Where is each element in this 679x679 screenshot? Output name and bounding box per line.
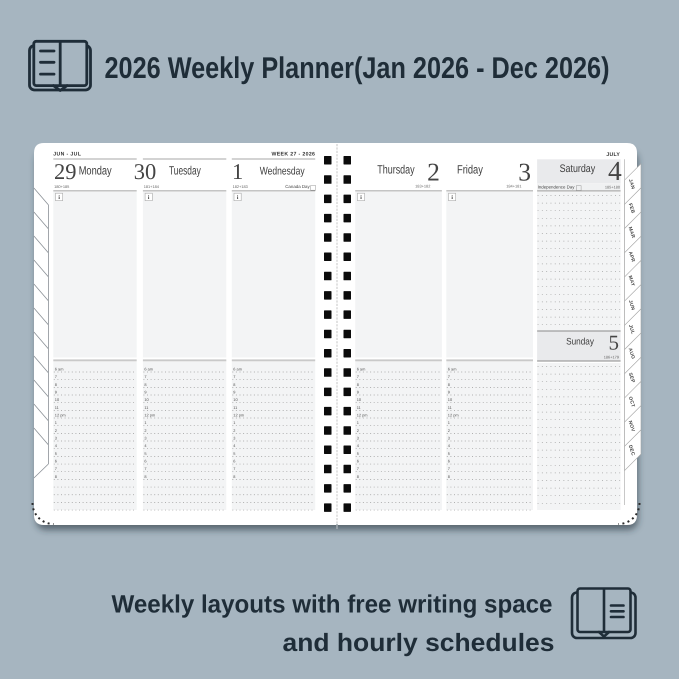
svg-text:11: 11 — [448, 405, 452, 410]
svg-text:183+182: 183+182 — [415, 184, 430, 189]
svg-text:8: 8 — [233, 382, 235, 387]
svg-text:6 am: 6 am — [357, 367, 366, 372]
svg-text:JUN - JUL: JUN - JUL — [53, 152, 81, 158]
svg-text:1: 1 — [144, 420, 146, 425]
svg-text:9: 9 — [55, 390, 57, 395]
svg-text:8: 8 — [233, 474, 235, 479]
svg-text:8: 8 — [448, 382, 450, 387]
svg-text:182+183: 182+183 — [233, 184, 248, 189]
svg-text:8: 8 — [55, 474, 57, 479]
svg-text:Wednesday: Wednesday — [260, 166, 305, 178]
svg-text:12 pm: 12 pm — [448, 413, 459, 418]
svg-text:30: 30 — [134, 159, 157, 184]
svg-text:8: 8 — [55, 382, 57, 387]
svg-text:7: 7 — [357, 374, 359, 379]
svg-text:6: 6 — [233, 459, 235, 464]
svg-text:186+179: 186+179 — [604, 355, 619, 360]
svg-text:3: 3 — [518, 157, 531, 186]
svg-text:1: 1 — [232, 159, 243, 184]
svg-text:6 am: 6 am — [448, 367, 457, 372]
svg-text:2: 2 — [144, 428, 146, 433]
svg-text:2: 2 — [233, 428, 235, 433]
svg-text:Canada Day: Canada Day — [285, 184, 310, 189]
svg-text:180+185: 180+185 — [54, 184, 69, 189]
svg-text:1: 1 — [448, 420, 450, 425]
svg-text:WEEK 27 - 2026: WEEK 27 - 2026 — [271, 152, 315, 158]
svg-text:7: 7 — [448, 374, 450, 379]
svg-text:3: 3 — [448, 436, 450, 441]
svg-text:7: 7 — [55, 374, 57, 379]
svg-text:7: 7 — [448, 466, 450, 471]
svg-text:3: 3 — [357, 436, 359, 441]
svg-text:11: 11 — [233, 405, 237, 410]
svg-text:12 pm: 12 pm — [144, 413, 155, 418]
svg-text:5: 5 — [55, 451, 57, 456]
svg-text:29: 29 — [54, 159, 77, 184]
svg-text:5: 5 — [609, 331, 620, 355]
svg-text:9: 9 — [144, 390, 146, 395]
svg-text:11: 11 — [357, 405, 361, 410]
svg-text:2: 2 — [55, 428, 57, 433]
svg-text:Independence Day: Independence Day — [538, 184, 576, 189]
svg-text:Tuesday: Tuesday — [169, 164, 201, 178]
svg-text:and hourly schedules: and hourly schedules — [283, 629, 555, 657]
svg-text:12 pm: 12 pm — [357, 413, 368, 418]
svg-text:Sunday: Sunday — [566, 337, 594, 348]
svg-text:12 pm: 12 pm — [233, 413, 244, 418]
svg-text:1: 1 — [55, 420, 57, 425]
svg-text:2: 2 — [448, 428, 450, 433]
svg-text:2: 2 — [427, 157, 440, 186]
svg-text:1: 1 — [357, 420, 359, 425]
svg-text:8: 8 — [144, 474, 146, 479]
svg-text:5: 5 — [144, 451, 146, 456]
svg-text:7: 7 — [55, 466, 57, 471]
svg-text:181+184: 181+184 — [144, 184, 160, 189]
svg-text:7: 7 — [144, 466, 146, 471]
svg-text:6: 6 — [448, 459, 450, 464]
svg-text:Monday: Monday — [79, 164, 112, 178]
svg-text:Thursday: Thursday — [377, 162, 414, 176]
svg-text:6 am: 6 am — [55, 367, 64, 372]
svg-text:3: 3 — [55, 436, 57, 441]
svg-text:6 am: 6 am — [233, 367, 242, 372]
svg-text:3: 3 — [233, 436, 235, 441]
svg-text:7: 7 — [233, 374, 235, 379]
svg-text:Saturday: Saturday — [560, 163, 596, 175]
svg-text:7: 7 — [357, 466, 359, 471]
svg-text:2026 Weekly Planner(Jan 2026 -: 2026 Weekly Planner(Jan 2026 - Dec 2026) — [105, 52, 610, 85]
svg-text:4: 4 — [608, 155, 622, 186]
svg-text:185+180: 185+180 — [605, 184, 621, 189]
svg-text:8: 8 — [144, 382, 146, 387]
svg-text:9: 9 — [233, 390, 235, 395]
svg-text:6: 6 — [357, 459, 359, 464]
svg-text:6: 6 — [55, 459, 57, 464]
svg-text:5: 5 — [233, 451, 235, 456]
svg-text:7: 7 — [144, 374, 146, 379]
svg-text:2: 2 — [357, 428, 359, 433]
svg-text:9: 9 — [357, 390, 359, 395]
svg-text:11: 11 — [55, 405, 59, 410]
svg-text:9: 9 — [448, 390, 450, 395]
svg-text:8: 8 — [357, 382, 359, 387]
svg-text:Weekly layouts with free writi: Weekly layouts with free writing space — [112, 591, 553, 619]
svg-text:8: 8 — [448, 474, 450, 479]
svg-text:7: 7 — [233, 466, 235, 471]
svg-text:12 pm: 12 pm — [55, 413, 66, 418]
svg-text:5: 5 — [448, 451, 450, 456]
svg-text:6 am: 6 am — [144, 367, 153, 372]
svg-text:6: 6 — [144, 459, 146, 464]
svg-text:8: 8 — [357, 474, 359, 479]
svg-text:3: 3 — [144, 436, 146, 441]
svg-text:11: 11 — [144, 405, 148, 410]
svg-text:184+181: 184+181 — [506, 184, 521, 189]
svg-text:1: 1 — [233, 420, 235, 425]
svg-text:5: 5 — [357, 451, 359, 456]
svg-text:Friday: Friday — [457, 162, 483, 176]
